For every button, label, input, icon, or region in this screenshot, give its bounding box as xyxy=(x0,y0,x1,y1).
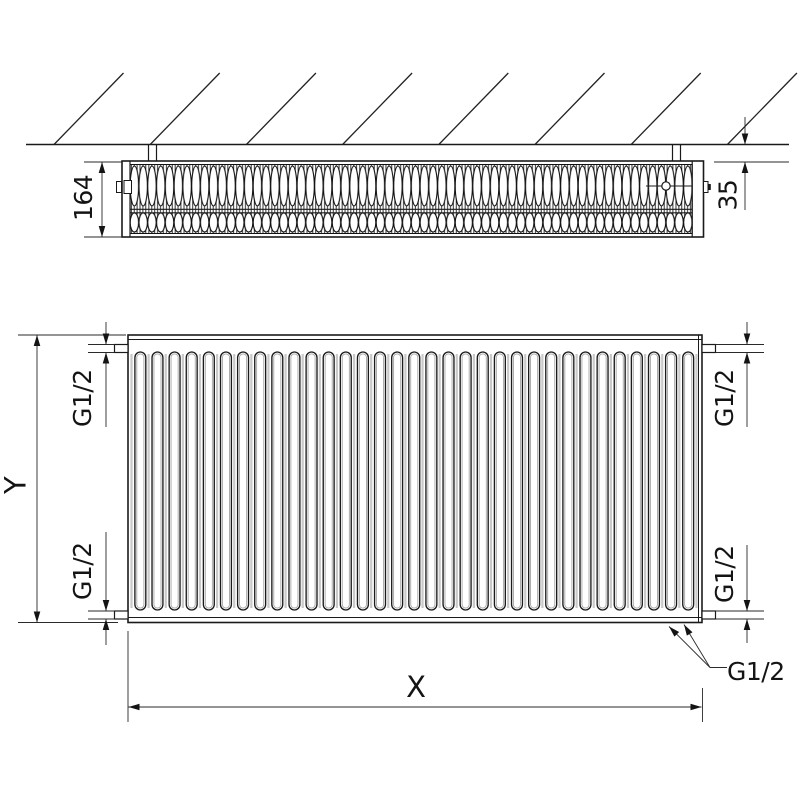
stub-bottom-left xyxy=(115,611,129,619)
radiator-top-view xyxy=(117,161,711,237)
right-connection-boss xyxy=(704,182,709,193)
conn-bottom-right-label: G1/2 xyxy=(710,545,739,603)
mounting-bracket-left xyxy=(149,145,157,162)
conn-bottom-center-label: G1/2 xyxy=(727,657,785,686)
front-view: Y X G1/2 G1/2 G xyxy=(0,322,785,722)
depth-dimension-label: 164 xyxy=(69,175,98,221)
conn-top-left-label: G1/2 xyxy=(68,369,97,427)
conn-bottom-left-label: G1/2 xyxy=(68,542,97,600)
radiator-front-view xyxy=(115,335,716,623)
conn-top-right-label: G1/2 xyxy=(710,369,739,427)
convector-fins xyxy=(130,165,692,234)
stub-top-left xyxy=(115,345,129,353)
wall-hatch xyxy=(54,73,797,145)
width-dimension-label: X xyxy=(406,670,426,704)
stub-top-right xyxy=(702,345,716,353)
radiator-technical-drawing: 164 35 xyxy=(0,0,800,800)
height-dimension-label: Y xyxy=(0,476,33,495)
left-connection-boss xyxy=(117,182,122,193)
leader-conn-bottom xyxy=(669,625,727,668)
top-view: 164 35 xyxy=(26,73,797,237)
drawing-canvas: 164 35 xyxy=(0,0,800,800)
stub-bottom-right xyxy=(702,611,716,619)
valve-insert xyxy=(662,182,670,190)
mounting-bracket-right xyxy=(673,145,681,162)
wall-distance-dimension-label: 35 xyxy=(714,180,743,211)
